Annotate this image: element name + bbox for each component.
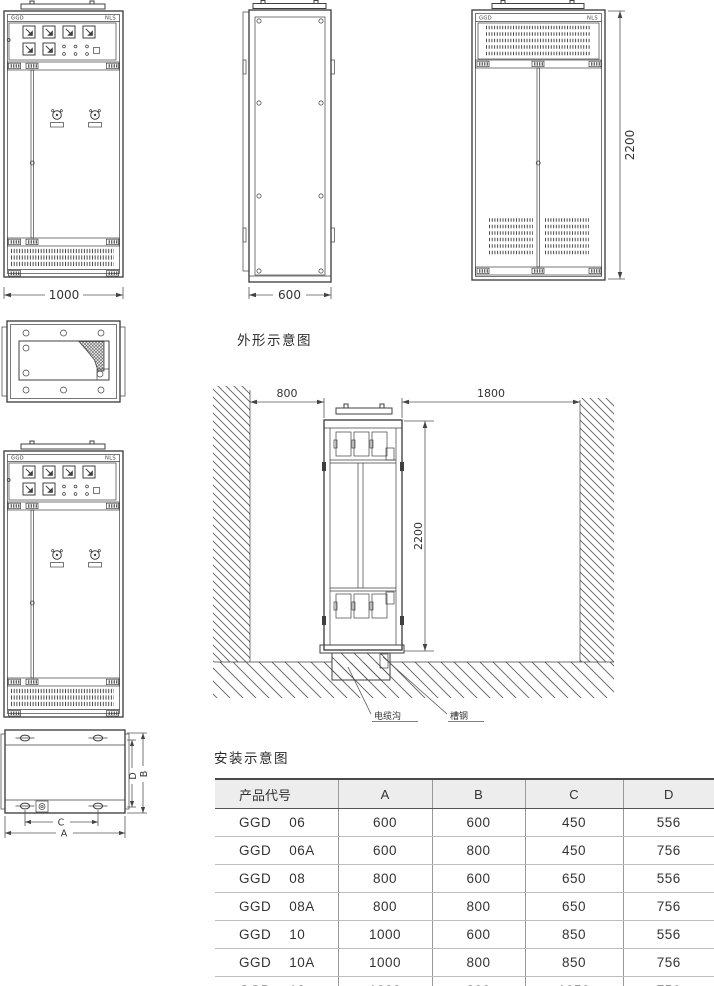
product-size: 10A [289,955,315,970]
value-d: 756 [623,837,714,865]
value-d: 756 [623,949,714,977]
table-row: GGD12 1200 800 1050 756 [215,977,714,986]
front-brand-left: GGD [11,16,24,22]
rear-clearance-value: 1800 [477,387,505,400]
product-series: GGD [239,955,271,970]
col-header-a: A [338,779,432,809]
left-wall-hatch [213,386,250,662]
catalog-page: GGD NLS 1000 [0,0,714,986]
value-d: 756 [623,893,714,921]
value-b: 800 [432,837,525,865]
col-header-b: B [432,779,525,809]
plan-dim-b: B [139,771,150,778]
product-size: 10 [289,927,305,942]
product-size: 06 [289,815,305,830]
product-size: 06A [289,843,315,858]
value-c: 1050 [525,977,623,986]
value-a: 1000 [338,921,432,949]
value-b: 600 [432,921,525,949]
side-depth-value: 600 [278,288,301,302]
front-view-cabinet: GGD NLS [4,1,123,277]
value-c: 450 [525,837,623,865]
table-row: GGD08 800 600 650 556 [215,865,714,893]
col-header-d: D [623,779,714,809]
front-brand-right: NLS [105,16,116,22]
value-d: 556 [623,809,714,837]
value-b: 800 [432,893,525,921]
install-height-value: 2200 [412,522,425,550]
plan-dim-a: A [61,829,68,840]
product-series: GGD [239,815,271,830]
value-a: 1000 [338,949,432,977]
value-d: 556 [623,865,714,893]
front-view-cabinet-2 [4,441,123,717]
col-header-product-code: 产品代号 [215,779,338,809]
floor-hatch [213,662,614,698]
value-a: 600 [338,809,432,837]
value-b: 800 [432,949,525,977]
product-series: GGD [239,871,271,886]
product-series: GGD [239,927,271,942]
table-row: GGD06 600 600 450 556 [215,809,714,837]
table-row: GGD06A 600 800 450 756 [215,837,714,865]
value-d: 556 [623,921,714,949]
installation-diagram: 800 1800 2200 电缆沟 槽钢 [213,386,614,722]
plan-dim-d: D [128,772,139,779]
cable-trench-label: 电缆沟 [374,710,401,722]
front-width-value: 1000 [49,288,80,302]
plan-dim-c: C [58,818,65,829]
value-c: 650 [525,893,623,921]
foundation-plan-view: D B C A [1,730,150,840]
outline-section-title: 外形示意图 [237,329,312,349]
product-size: 08A [289,899,315,914]
col-header-c: C [525,779,623,809]
cable-trench-pit [332,653,390,680]
cabinet-section [320,404,404,680]
value-b: 800 [432,977,525,986]
rear-height-dimension: 2200 [608,11,637,279]
rear-height-value: 2200 [623,130,637,161]
value-a: 800 [338,865,432,893]
value-c: 650 [525,865,623,893]
product-series: GGD [239,899,271,914]
hatched-cutout-region [79,342,104,372]
value-a: 800 [338,893,432,921]
spec-table-header-row: 产品代号 A B C D [215,779,714,809]
front-width-dimension: 1000 [4,287,123,302]
value-a: 600 [338,837,432,865]
value-b: 600 [432,865,525,893]
value-a: 1200 [338,977,432,986]
rear-view-cabinet: GGD NLS [472,1,605,281]
side-depth-dimension: 600 [249,287,331,302]
install-dimensions: 800 1800 2200 [250,387,580,651]
left-clearance-value: 800 [277,387,298,400]
spec-table: 产品代号 A B C D GGD06 600 600 450 556 GGD06… [215,778,714,986]
table-row: GGD10 1000 600 850 556 [215,921,714,949]
value-b: 600 [432,809,525,837]
table-row: GGD08A 800 800 650 756 [215,893,714,921]
value-d: 756 [623,977,714,986]
side-view-cabinet [243,1,335,283]
right-wall-hatch [580,398,614,662]
channel-steel-label: 槽钢 [450,710,468,722]
table-row: GGD10A 1000 800 850 756 [215,949,714,977]
top-view-cabinet [2,321,125,402]
value-c: 850 [525,949,623,977]
value-c: 850 [525,921,623,949]
product-size: 08 [289,871,305,886]
rear-brand-left: GGD [479,16,492,22]
product-series: GGD [239,843,271,858]
value-c: 450 [525,809,623,837]
install-section-title: 安装示意图 [214,747,289,767]
rear-brand-right: NLS [587,16,598,22]
